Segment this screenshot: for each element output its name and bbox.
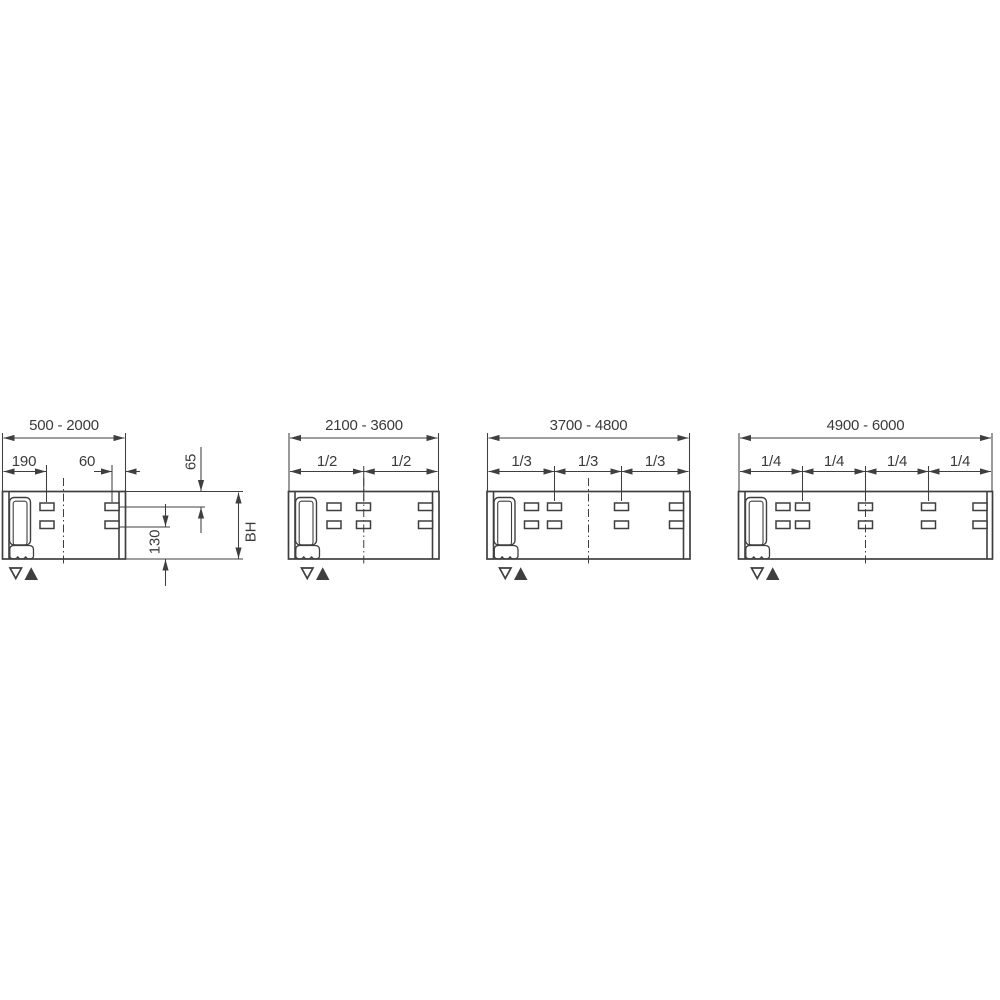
mounting-slot: [776, 503, 790, 511]
drawing-svg: 500 - 2000 190 60 65 130 BH: [0, 0, 1000, 1000]
mounting-slot: [548, 503, 562, 511]
mounting-slot: [419, 521, 433, 529]
range-dimension-label: 500 - 2000: [29, 417, 99, 434]
diagram-500-2000: 500 - 2000 190 60 65 130 BH: [3, 417, 260, 586]
mounting-slot: [973, 521, 987, 529]
diagram-4900-6000: 4900 - 6000 1/4 1/4 1/4 1/4: [739, 417, 993, 580]
technical-drawing-page: 500 - 2000 190 60 65 130 BH: [0, 0, 1000, 1000]
mounting-slot: [973, 503, 987, 511]
fraction-label: 1/2: [317, 453, 337, 470]
mounting-slot: [40, 503, 54, 511]
mounting-slot: [327, 503, 341, 511]
offset-190-label: 190: [12, 453, 36, 470]
mounting-slot: [670, 521, 684, 529]
mounting-slot: [105, 503, 119, 511]
mounting-slot: [525, 521, 539, 529]
triangle-down-up-icons: [500, 567, 528, 580]
mounting-slot: [327, 521, 341, 529]
diagram-2100-3600: 2100 - 3600 1/2 1/2: [289, 417, 440, 580]
fraction-label: 1/2: [391, 453, 411, 470]
mounting-slot: [40, 521, 54, 529]
fraction-label: 1/4: [824, 453, 844, 470]
diagram-3700-4800: 3700 - 4800 1/3 1/3 1/3: [487, 417, 690, 580]
triangle-down-up-icons: [10, 567, 38, 580]
offset-60-label: 60: [79, 453, 95, 470]
mounting-slot: [796, 521, 810, 529]
mounting-slot: [776, 521, 790, 529]
fraction-label: 1/3: [645, 453, 665, 470]
offset-65-label: 65: [183, 454, 200, 470]
mounting-slot: [615, 521, 629, 529]
mounting-slot: [670, 503, 684, 511]
mounting-slot: [796, 503, 810, 511]
range-dimension-label: 2100 - 3600: [325, 417, 403, 434]
mounting-slot: [525, 503, 539, 511]
mounting-slot: [922, 503, 936, 511]
offset-130-label: 130: [147, 530, 164, 554]
mounting-slot: [548, 521, 562, 529]
fraction-label: 1/3: [511, 453, 531, 470]
triangle-down-up-icons: [302, 567, 330, 580]
range-dimension-label: 4900 - 6000: [827, 417, 905, 434]
fraction-label: 1/4: [761, 453, 781, 470]
fraction-label: 1/3: [578, 453, 598, 470]
range-dimension-label: 3700 - 4800: [550, 417, 628, 434]
fraction-label: 1/4: [950, 453, 970, 470]
height-bh-label: BH: [243, 522, 260, 542]
mounting-slot: [922, 521, 936, 529]
mounting-slot: [615, 503, 629, 511]
triangle-down-up-icons: [752, 567, 780, 580]
mounting-slot: [105, 521, 119, 529]
fraction-label: 1/4: [887, 453, 907, 470]
mounting-slot: [419, 503, 433, 511]
